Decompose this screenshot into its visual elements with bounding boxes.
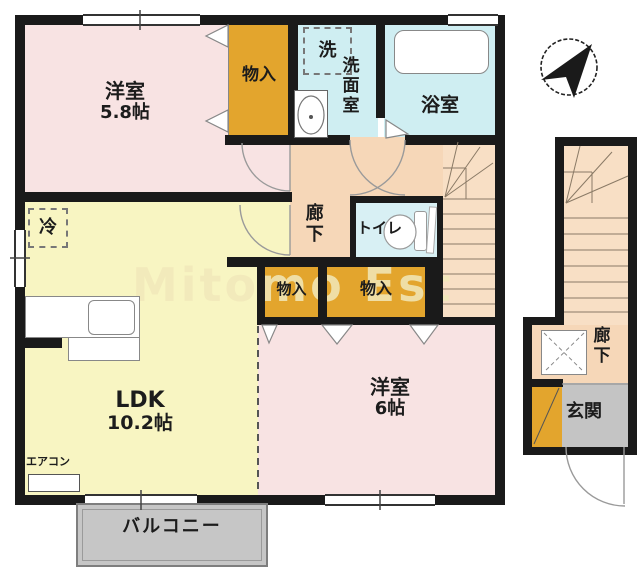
washroom-door-arc-1 (350, 140, 405, 195)
closet-top-label: 物入 (230, 66, 288, 86)
bedroom1-door-arc (242, 143, 290, 191)
bedroom1-label: 洋室 5.8帖 (70, 80, 180, 124)
bedroom2-name: 洋室 (330, 376, 450, 399)
washbasin (298, 96, 324, 134)
toilet-label: トイレ (357, 220, 402, 237)
closet-left-door-mark (262, 325, 277, 343)
stairs-main-treads (443, 142, 495, 304)
stairs-entry-treads (564, 146, 628, 312)
bedroom1-size: 5.8帖 (70, 103, 180, 124)
bedroom1-name: 洋室 (70, 80, 180, 103)
washroom-label: 洗面室 (338, 56, 358, 116)
closet-right-door-mark-1 (322, 325, 352, 344)
entry-hatch-x (544, 333, 584, 372)
ldk-label: LDK 10.2帖 (75, 388, 205, 435)
balcony-label: バルコニー (92, 517, 252, 538)
ldk-name: LDK (75, 388, 205, 413)
ldk-size: 10.2帖 (75, 413, 205, 435)
compass-north-icon (541, 39, 597, 98)
floor-plan: Mitomo Est 洗 冷 (0, 0, 640, 579)
closet-right-label: 物入 (327, 280, 425, 298)
bathroom-label: 浴室 (400, 95, 480, 117)
bathroom-door-mark (386, 120, 408, 138)
door-arcs (240, 140, 625, 506)
entrance-label: 玄関 (566, 402, 602, 423)
ldk-door-arc (240, 205, 290, 255)
corridor-main-label: 廊下 (302, 203, 323, 245)
entry-door-arc (566, 447, 625, 506)
cabinet-door-line (534, 388, 559, 444)
closet-right-door-mark-2 (410, 325, 438, 344)
corridor-entry-label: 廊下 (589, 326, 609, 366)
washroom-door-arc-2 (350, 140, 405, 195)
closet-left-label: 物入 (265, 281, 318, 298)
closet-top-door-mark-2 (206, 110, 228, 132)
aircon-label: エアコン (26, 456, 70, 469)
bedroom2-size: 6帖 (330, 399, 450, 420)
bedroom2-label: 洋室 6帖 (330, 376, 450, 420)
closet-top-door-mark-1 (206, 25, 228, 47)
